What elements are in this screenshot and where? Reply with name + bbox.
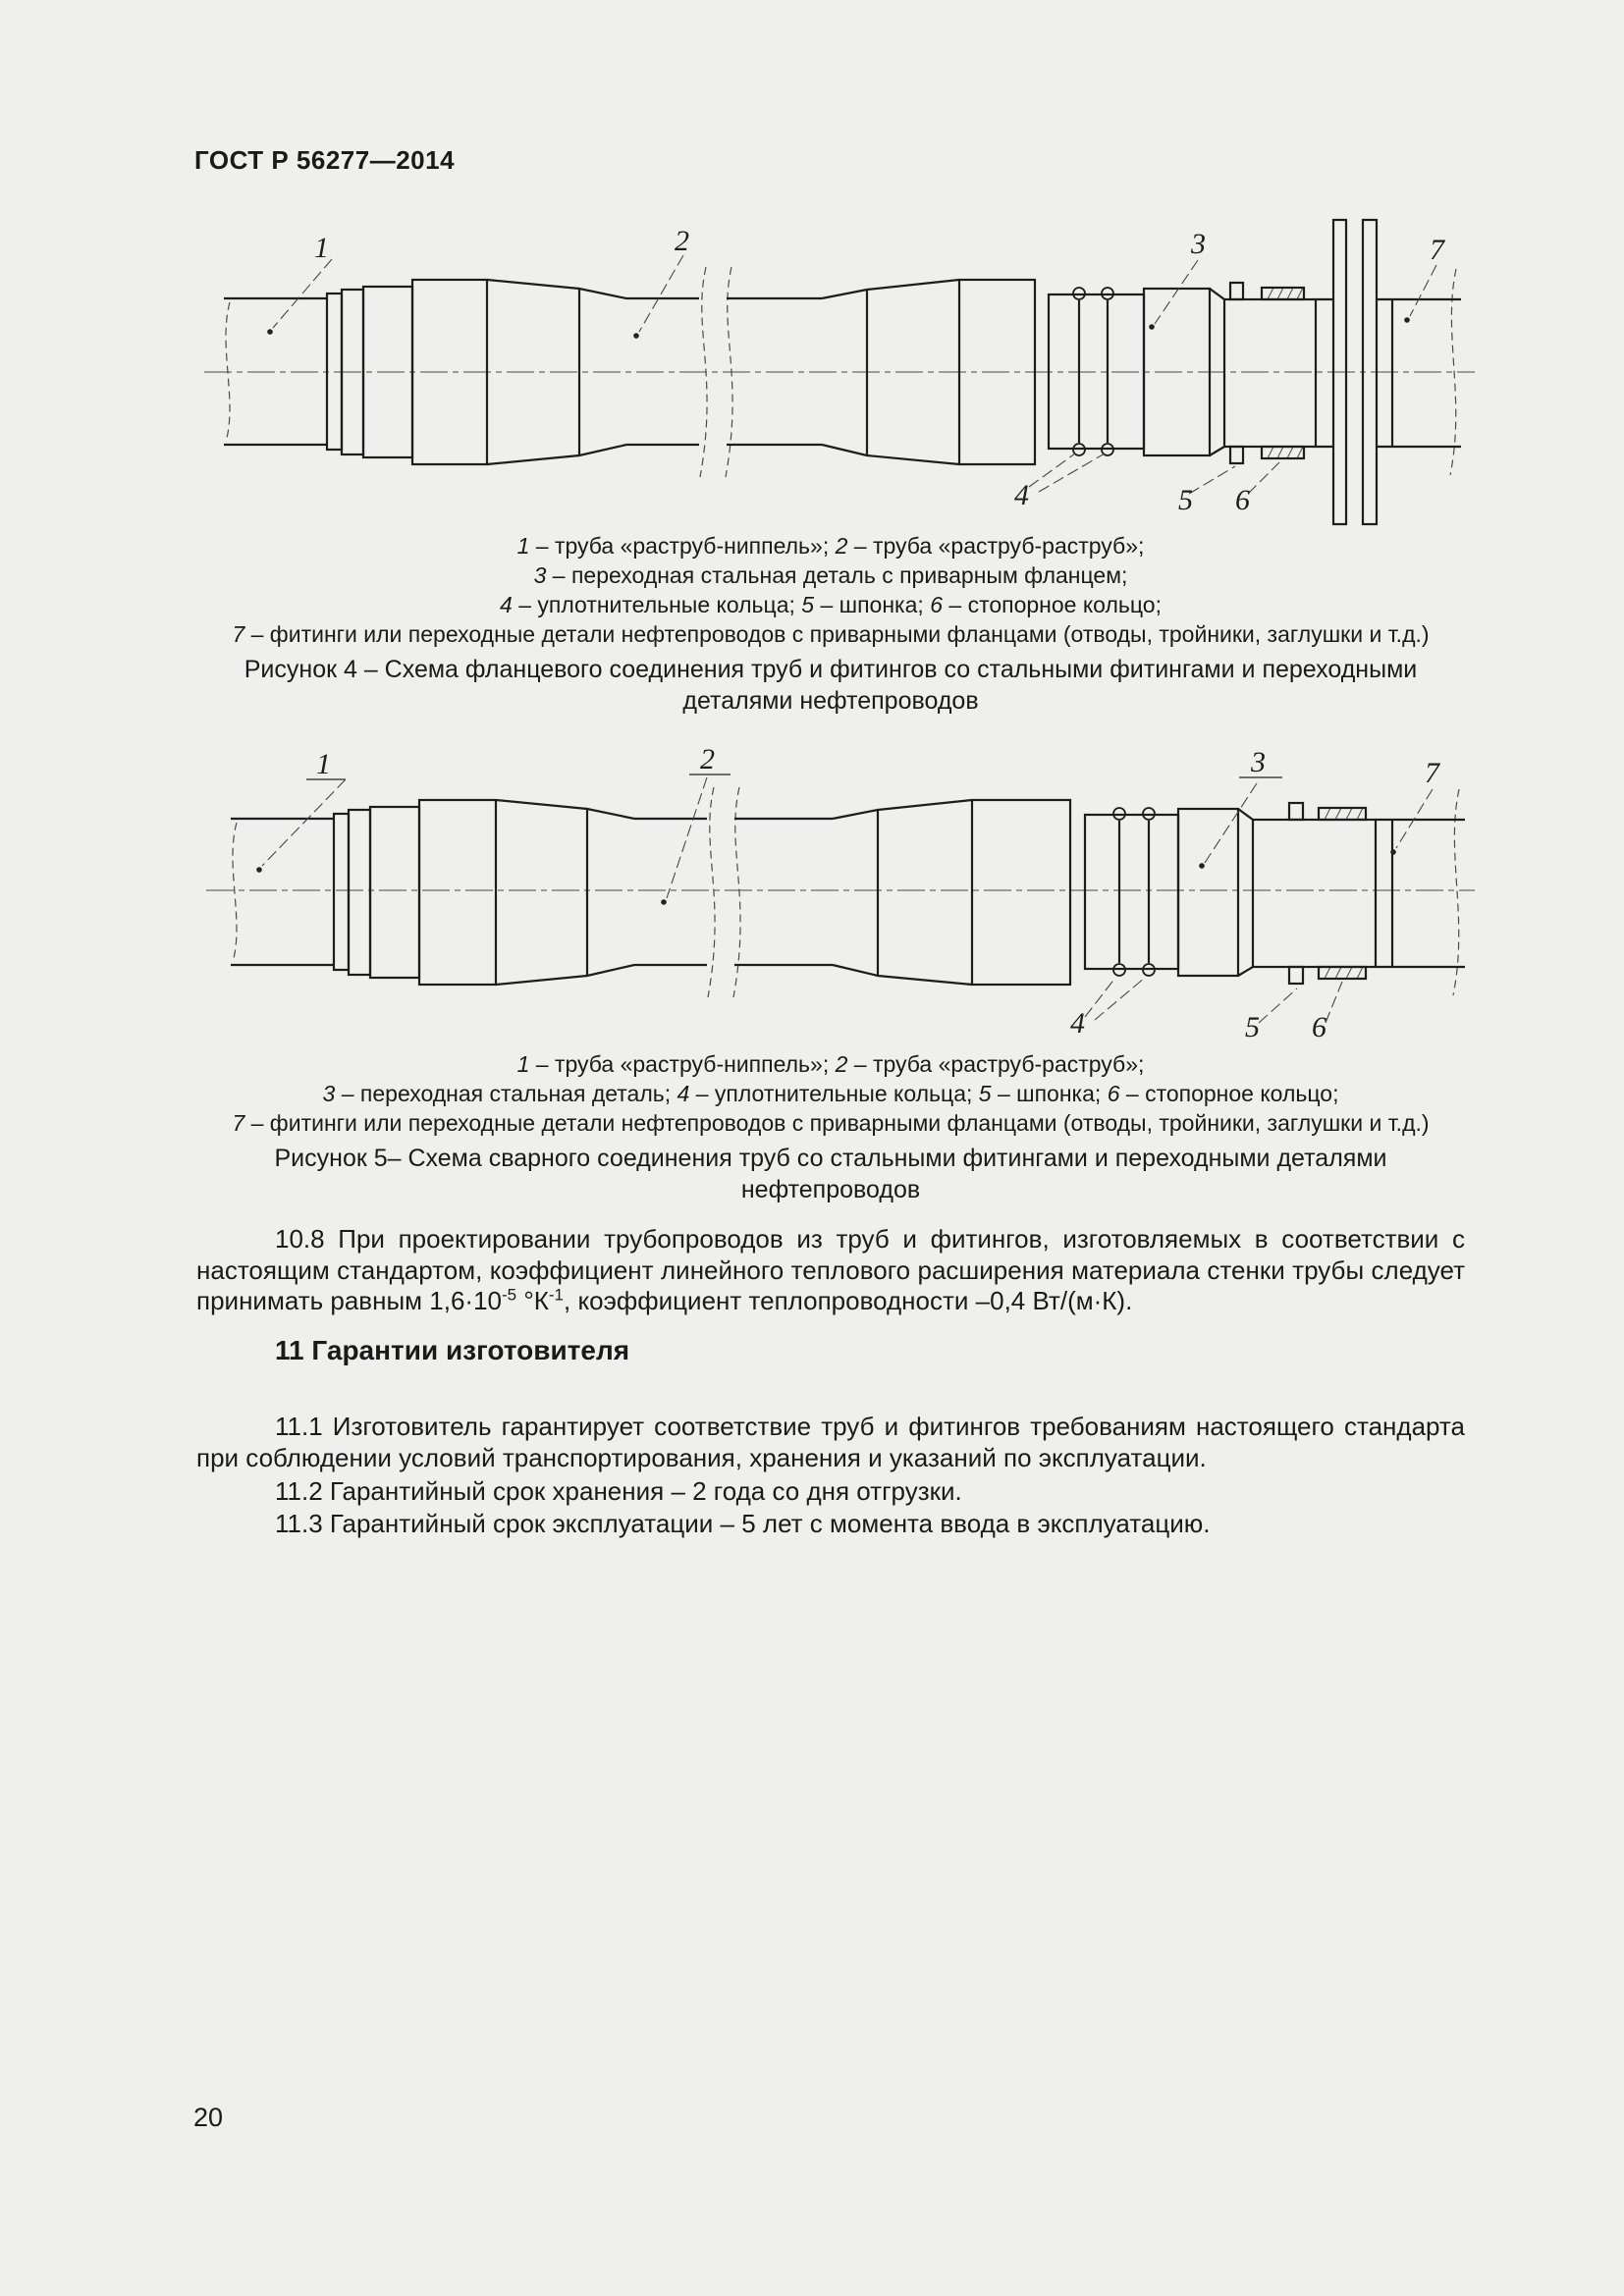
fig4-label-3: 3 xyxy=(1190,228,1206,260)
figure4-caption-line: 4 – уплотнительные кольца; 5 – шпонка; 6… xyxy=(196,590,1465,619)
fig5-label-3: 3 xyxy=(1250,746,1266,778)
fig4-label-7: 7 xyxy=(1430,234,1446,266)
fig4-label-1: 1 xyxy=(314,232,329,264)
fig4-key xyxy=(1230,283,1243,299)
fig5-label-4: 4 xyxy=(1070,1007,1085,1040)
fig4-label-4: 4 xyxy=(1014,479,1029,511)
figure5-caption-line: 1 – труба «раструб-ниппель»; 2 – труба «… xyxy=(196,1049,1465,1079)
fig4-label-6: 6 xyxy=(1235,484,1250,516)
figure4-title: Рисунок 4 – Схема фланцевого соединения … xyxy=(196,654,1465,717)
document-header: ГОСТ Р 56277—2014 xyxy=(194,145,455,176)
fig5-pipe-outlines xyxy=(231,800,1465,985)
page-number: 20 xyxy=(193,2103,223,2133)
fig4-label-2: 2 xyxy=(675,225,689,257)
figure5-drawing: 1 2 3 7 4 5 6 xyxy=(196,728,1483,1052)
fig5-label-2: 2 xyxy=(700,743,715,775)
figure4-drawing: 1 2 3 7 4 5 6 xyxy=(196,208,1483,532)
fig4-label-5: 5 xyxy=(1178,484,1193,516)
document-page: ГОСТ Р 56277—2014 xyxy=(0,0,1624,2296)
fig5-seal-gland xyxy=(1085,815,1178,969)
clause-10-8: 10.8 При проектировании трубопроводов из… xyxy=(196,1224,1465,1317)
section-11-title: 11 Гарантии изготовителя xyxy=(275,1335,629,1366)
fig5-key xyxy=(1289,803,1303,820)
fig5-transition-piece xyxy=(1178,809,1238,976)
figure4-caption-line: 1 – труба «раструб-ниппель»; 2 – труба «… xyxy=(196,531,1465,561)
fig5-label-6: 6 xyxy=(1312,1011,1326,1043)
fig5-label-7: 7 xyxy=(1425,757,1441,789)
clause-11-1: 11.1 Изготовитель гарантирует соответств… xyxy=(196,1412,1465,1473)
fig5-label-1: 1 xyxy=(316,748,331,780)
clause-11-2: 11.2 Гарантийный срок хранения – 2 года … xyxy=(275,1476,1512,1508)
figure4-caption-line: 7 – фитинги или переходные детали нефтеп… xyxy=(196,619,1465,649)
figure5-title: Рисунок 5– Схема сварного соединения тру… xyxy=(196,1143,1465,1205)
figure4-caption-line: 3 – переходная стальная деталь с приварн… xyxy=(196,561,1465,590)
figure5-caption-line: 7 – фитинги или переходные детали нефтеп… xyxy=(196,1108,1465,1138)
clause-11-3: 11.3 Гарантийный срок эксплуатации – 5 л… xyxy=(275,1509,1512,1540)
figure4-caption: 1 – труба «раструб-ниппель»; 2 – труба «… xyxy=(196,531,1465,649)
figure5-caption-line: 3 – переходная стальная деталь; 4 – упло… xyxy=(196,1079,1465,1108)
fig5-label-5: 5 xyxy=(1245,1011,1260,1043)
figure5-caption: 1 – труба «раструб-ниппель»; 2 – труба «… xyxy=(196,1049,1465,1138)
